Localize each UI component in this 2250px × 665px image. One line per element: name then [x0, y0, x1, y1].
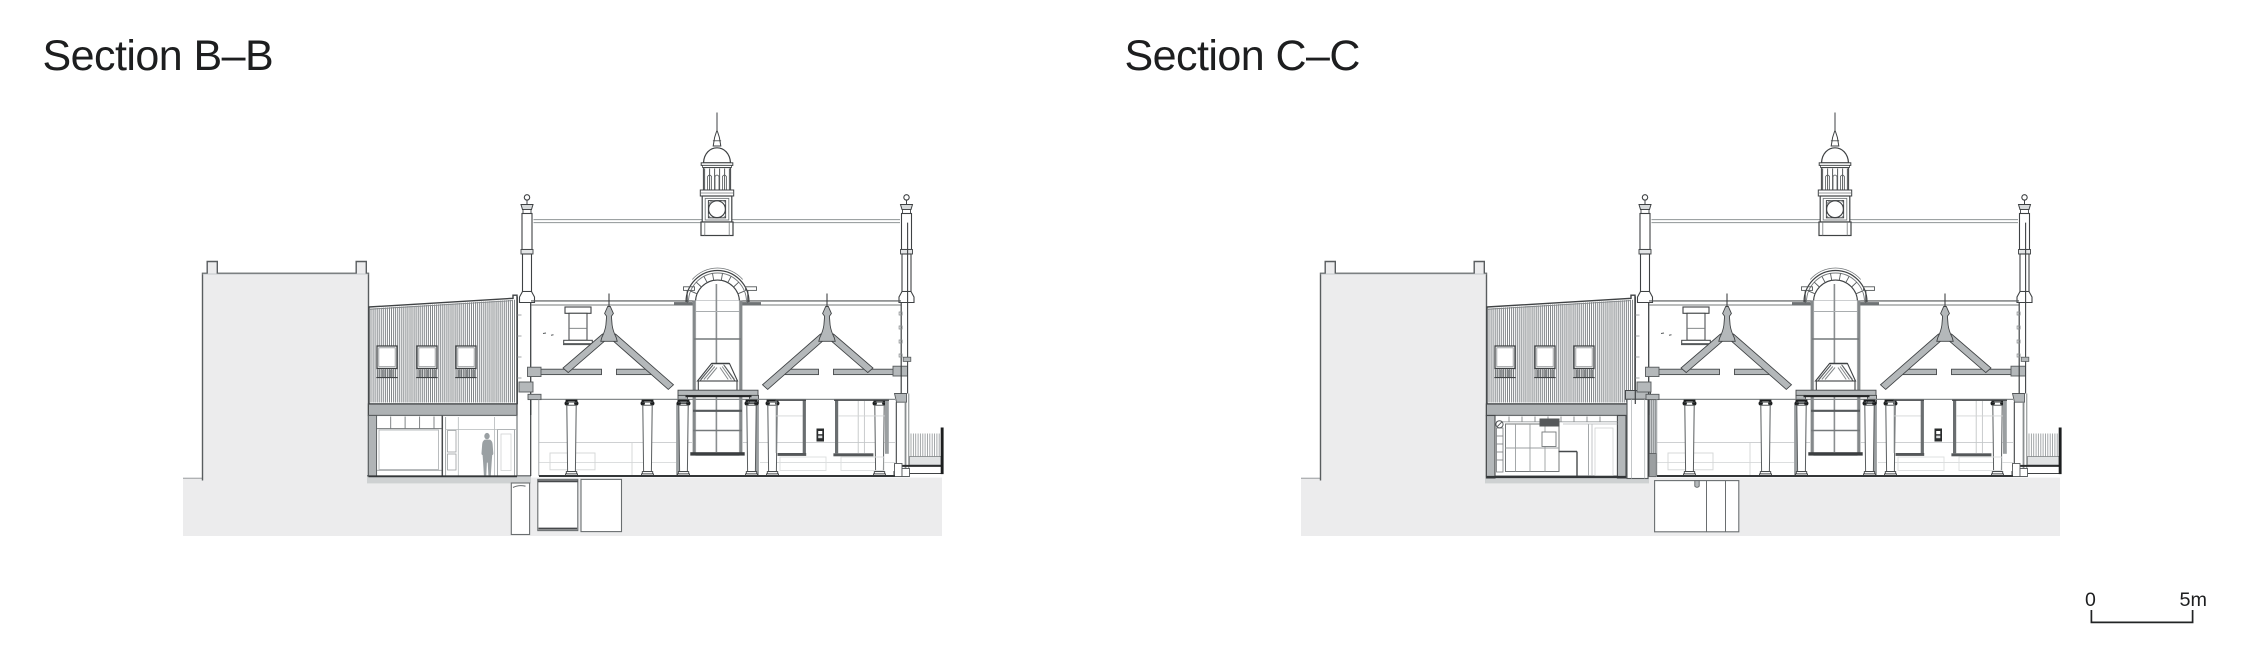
svg-text:Section B–B: Section B–B [43, 32, 274, 80]
svg-text:5m: 5m [2180, 589, 2207, 611]
svg-text:Section C–C: Section C–C [1125, 32, 1360, 80]
svg-text:0: 0 [2085, 589, 2096, 611]
